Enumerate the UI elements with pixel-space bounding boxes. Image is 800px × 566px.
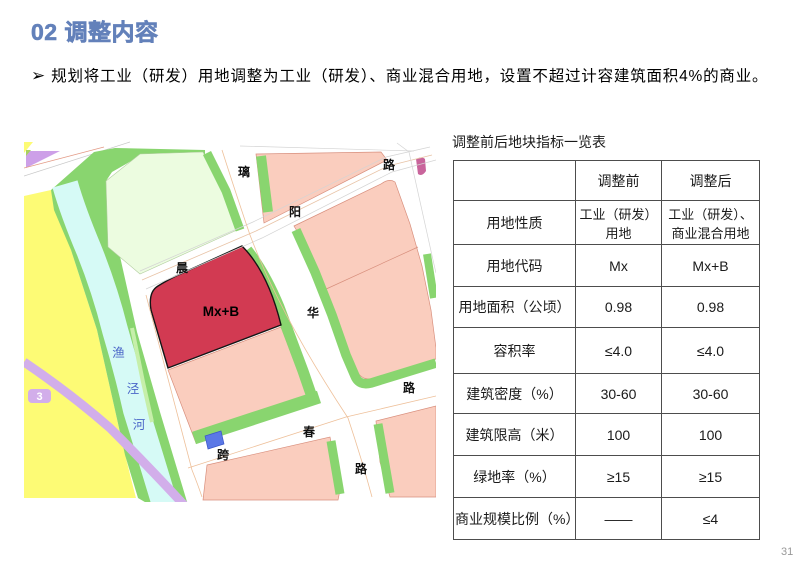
svg-text:路: 路 [355, 461, 368, 476]
svg-text:晨: 晨 [176, 261, 189, 275]
svg-text:璃: 璃 [238, 164, 250, 179]
svg-text:阳: 阳 [289, 204, 301, 219]
svg-text:华: 华 [307, 305, 319, 320]
svg-text:Mx+B: Mx+B [203, 304, 240, 319]
svg-text:路: 路 [403, 380, 416, 395]
svg-text:河: 河 [133, 418, 146, 432]
svg-text:春: 春 [302, 424, 316, 439]
svg-text:渔: 渔 [112, 346, 125, 360]
svg-text:泾: 泾 [127, 382, 140, 396]
svg-text:3: 3 [36, 391, 42, 403]
svg-text:路: 路 [383, 157, 396, 172]
svg-text:跨: 跨 [217, 448, 230, 462]
